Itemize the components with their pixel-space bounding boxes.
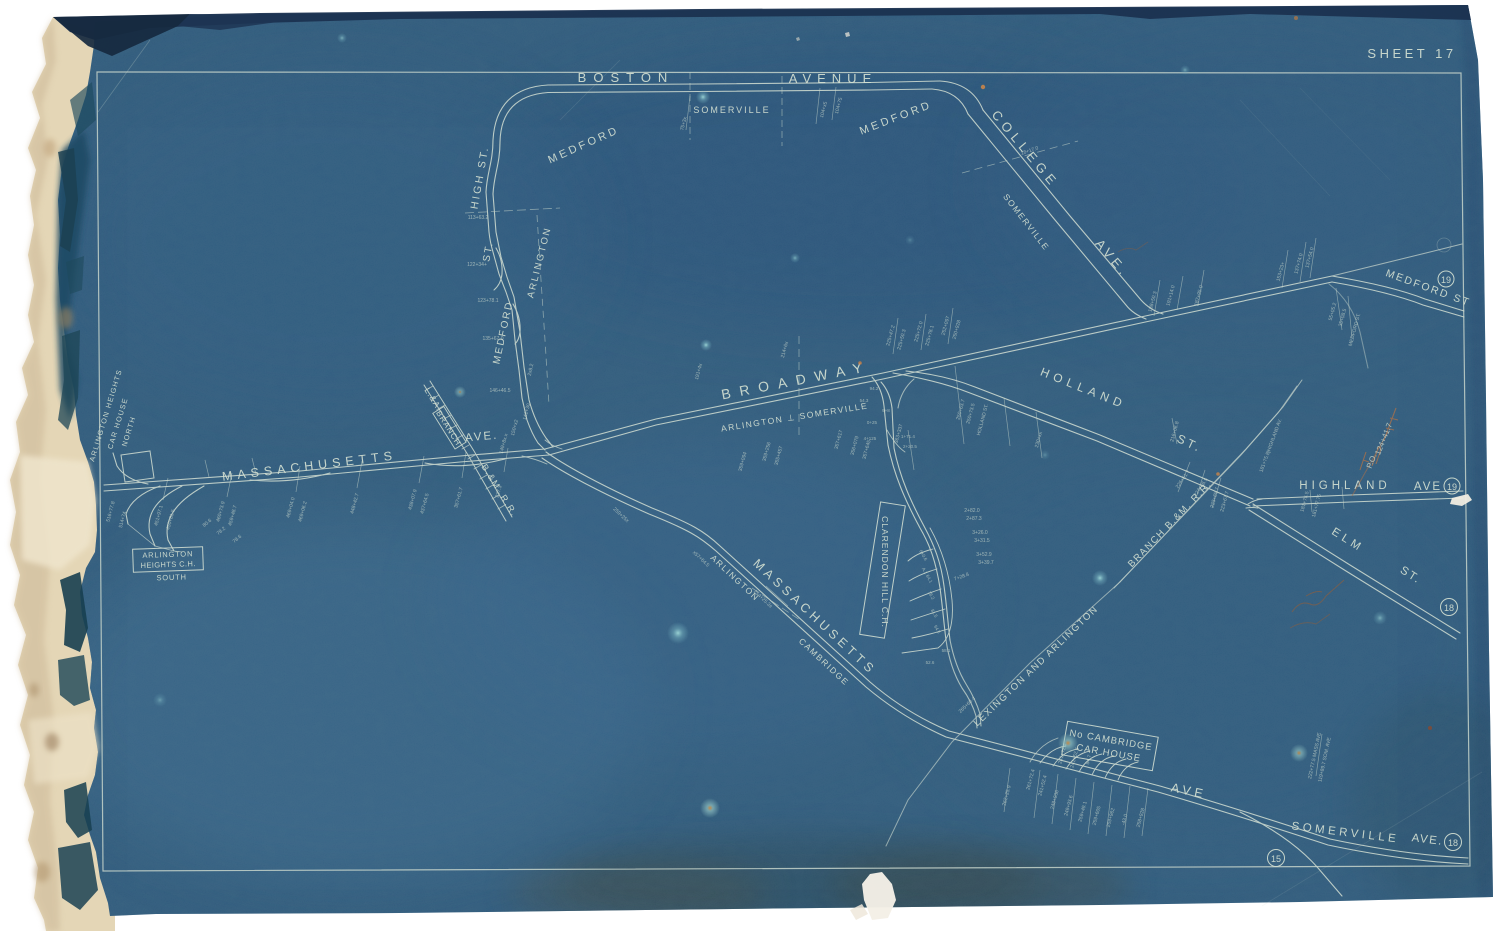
svg-text:18: 18 <box>1448 838 1458 848</box>
svg-text:122+34+: 122+34+ <box>467 262 487 268</box>
svg-text:2+87.3: 2+87.3 <box>966 516 982 522</box>
svg-text:AVE: AVE <box>1414 481 1442 493</box>
svg-text:SHEET 17: SHEET 17 <box>1367 46 1456 61</box>
svg-text:SOMERVILLE: SOMERVILLE <box>693 105 770 115</box>
svg-text:AVENUE: AVENUE <box>789 71 878 86</box>
svg-text:SOUTH: SOUTH <box>156 572 187 582</box>
svg-text:0+25: 0+25 <box>867 420 878 425</box>
svg-text:19: 19 <box>1447 482 1457 492</box>
svg-text:1+71.4: 1+71.4 <box>901 434 915 439</box>
svg-text:3+26.0: 3+26.0 <box>972 530 988 536</box>
svg-text:HIGHLAND: HIGHLAND <box>1299 480 1390 492</box>
svg-text:4+125: 4+125 <box>864 436 877 441</box>
svg-text:ARLINGTON: ARLINGTON <box>142 549 193 560</box>
svg-text:3+31.5: 3+31.5 <box>974 538 990 544</box>
svg-text:2+20.5: 2+20.5 <box>903 444 917 449</box>
svg-text:3+39.7: 3+39.7 <box>978 560 994 566</box>
svg-text:HEIGHTS C.H.: HEIGHTS C.H. <box>140 559 196 570</box>
svg-text:CLARENDON HILL C.H.: CLARENDON HILL C.H. <box>880 516 890 628</box>
svg-text:146+46.5: 146+46.5 <box>490 388 511 394</box>
svg-text:94.2: 94.2 <box>870 386 879 391</box>
svg-text:54.3: 54.3 <box>860 398 869 403</box>
svg-text:3+52.9: 3+52.9 <box>976 552 992 558</box>
svg-text:18: 18 <box>1444 603 1454 613</box>
svg-text:52.6: 52.6 <box>926 660 935 665</box>
svg-text:19: 19 <box>1441 275 1451 285</box>
svg-text:123+78.1: 123+78.1 <box>478 298 499 304</box>
svg-text:113+63.2: 113+63.2 <box>468 215 489 221</box>
svg-text:9+8: 9+8 <box>882 408 890 413</box>
svg-text:BOSTON: BOSTON <box>578 70 675 85</box>
svg-text:58.1: 58.1 <box>942 648 951 653</box>
svg-text:135+67.0: 135+67.0 <box>483 336 504 342</box>
svg-text:15: 15 <box>1271 854 1281 864</box>
svg-text:2+82.0: 2+82.0 <box>964 508 980 514</box>
